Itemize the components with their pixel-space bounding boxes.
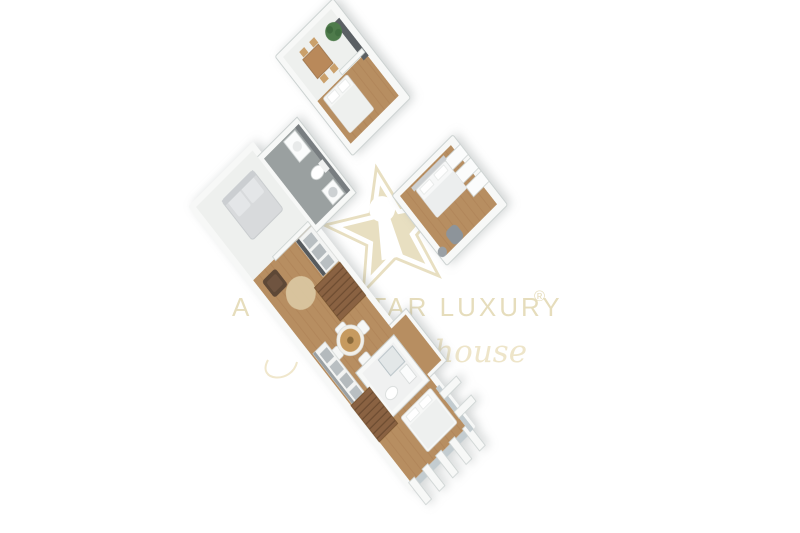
floor-plan-canvas: A STAR LUXURY ® ry house — [0, 0, 800, 533]
tagline-flourish — [266, 360, 297, 378]
floor-plan-page: A STAR LUXURY ® ry house — [0, 0, 800, 533]
watermark-partial-letter: A — [232, 292, 252, 322]
registered-trademark-icon: ® — [534, 288, 548, 305]
